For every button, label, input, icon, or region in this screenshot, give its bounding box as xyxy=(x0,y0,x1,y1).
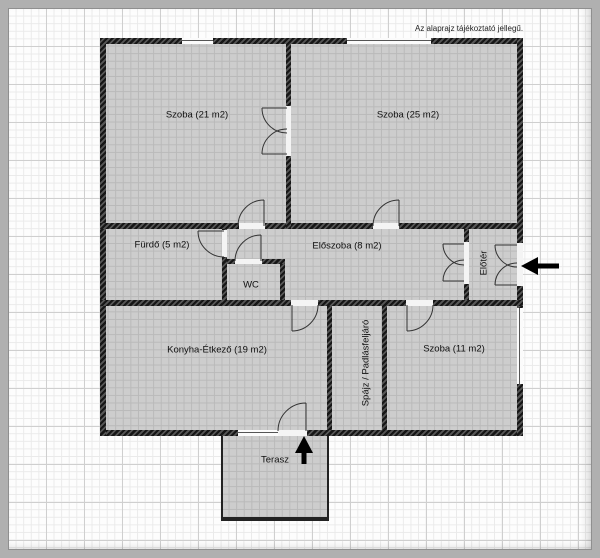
room-label-furdo: Fürdő (5 m2) xyxy=(135,240,190,251)
room-label-terasz: Terasz xyxy=(261,455,289,466)
door-opening-eloter xyxy=(464,242,469,284)
room-label-wc: WC xyxy=(243,280,259,291)
door-opening-entrance xyxy=(517,243,523,286)
room-label-szoba-25: Szoba (25 m2) xyxy=(377,110,439,121)
wall-exterior-bottom xyxy=(100,430,523,436)
wall-middle-upper xyxy=(100,223,523,229)
window-konyha-terasz xyxy=(238,430,278,436)
terasz-floor xyxy=(221,433,329,521)
wall-spajz-right xyxy=(382,306,387,430)
door-opening-szoba25 xyxy=(373,223,399,229)
room-label-spajz-padlasfeljaro: Spájz / Padlásfeljáró xyxy=(361,320,372,407)
wall-exterior-left xyxy=(100,38,106,436)
wall-terasz-bottom xyxy=(221,517,329,521)
wall-spajz-left xyxy=(327,306,332,430)
door-opening-szoba21 xyxy=(239,223,265,229)
room-label-eloszoba: Előszoba (8 m2) xyxy=(312,241,381,252)
door-opening-furdo xyxy=(222,230,227,257)
door-opening-szoba11 xyxy=(406,300,433,306)
window-szoba25-top xyxy=(347,38,431,44)
door-opening-terasz xyxy=(278,430,307,436)
room-label-szoba-11: Szoba (11 m2) xyxy=(423,344,485,355)
house-floor xyxy=(100,38,523,436)
wall-wc-right xyxy=(280,264,285,300)
room-label-szoba-21: Szoba (21 m2) xyxy=(166,110,228,121)
wall-terasz-left xyxy=(221,436,223,521)
door-opening-konyha xyxy=(291,300,318,306)
window-szoba11-right xyxy=(517,308,523,384)
window-szoba21-top xyxy=(182,38,213,44)
room-label-eloter: Előtér xyxy=(479,251,490,276)
wall-terasz-right xyxy=(327,436,329,521)
wall-exterior-top xyxy=(100,38,523,44)
door-opening-wc xyxy=(235,259,262,264)
floorplan-screenshot: Az alaprajz tájékoztató jellegű. xyxy=(0,0,600,558)
disclaimer-note: Az alaprajz tájékoztató jellegű. xyxy=(415,24,517,33)
room-label-konyha-etkezo: Konyha-Étkező (19 m2) xyxy=(167,345,267,356)
door-opening-between-szobak xyxy=(286,106,291,156)
